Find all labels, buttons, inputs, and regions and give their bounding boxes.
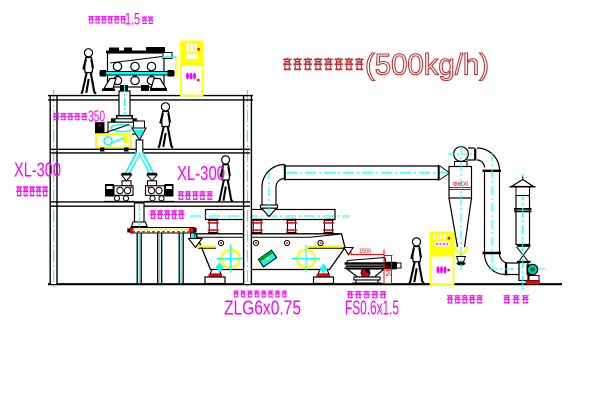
svg-text:(500kg/h): (500kg/h): [365, 49, 489, 82]
svg-text:540: 540: [387, 265, 393, 277]
svg-text:XL-300: XL-300: [177, 163, 225, 185]
svg-text:350: 350: [88, 109, 105, 126]
svg-text:1.5: 1.5: [125, 10, 140, 29]
svg-text:FS0.6x1.5: FS0.6x1.5: [345, 298, 399, 320]
svg-text:ZLG6x0.75: ZLG6x0.75: [224, 298, 301, 320]
svg-text:1500: 1500: [359, 249, 372, 255]
svg-text:XL-300: XL-300: [14, 160, 61, 182]
